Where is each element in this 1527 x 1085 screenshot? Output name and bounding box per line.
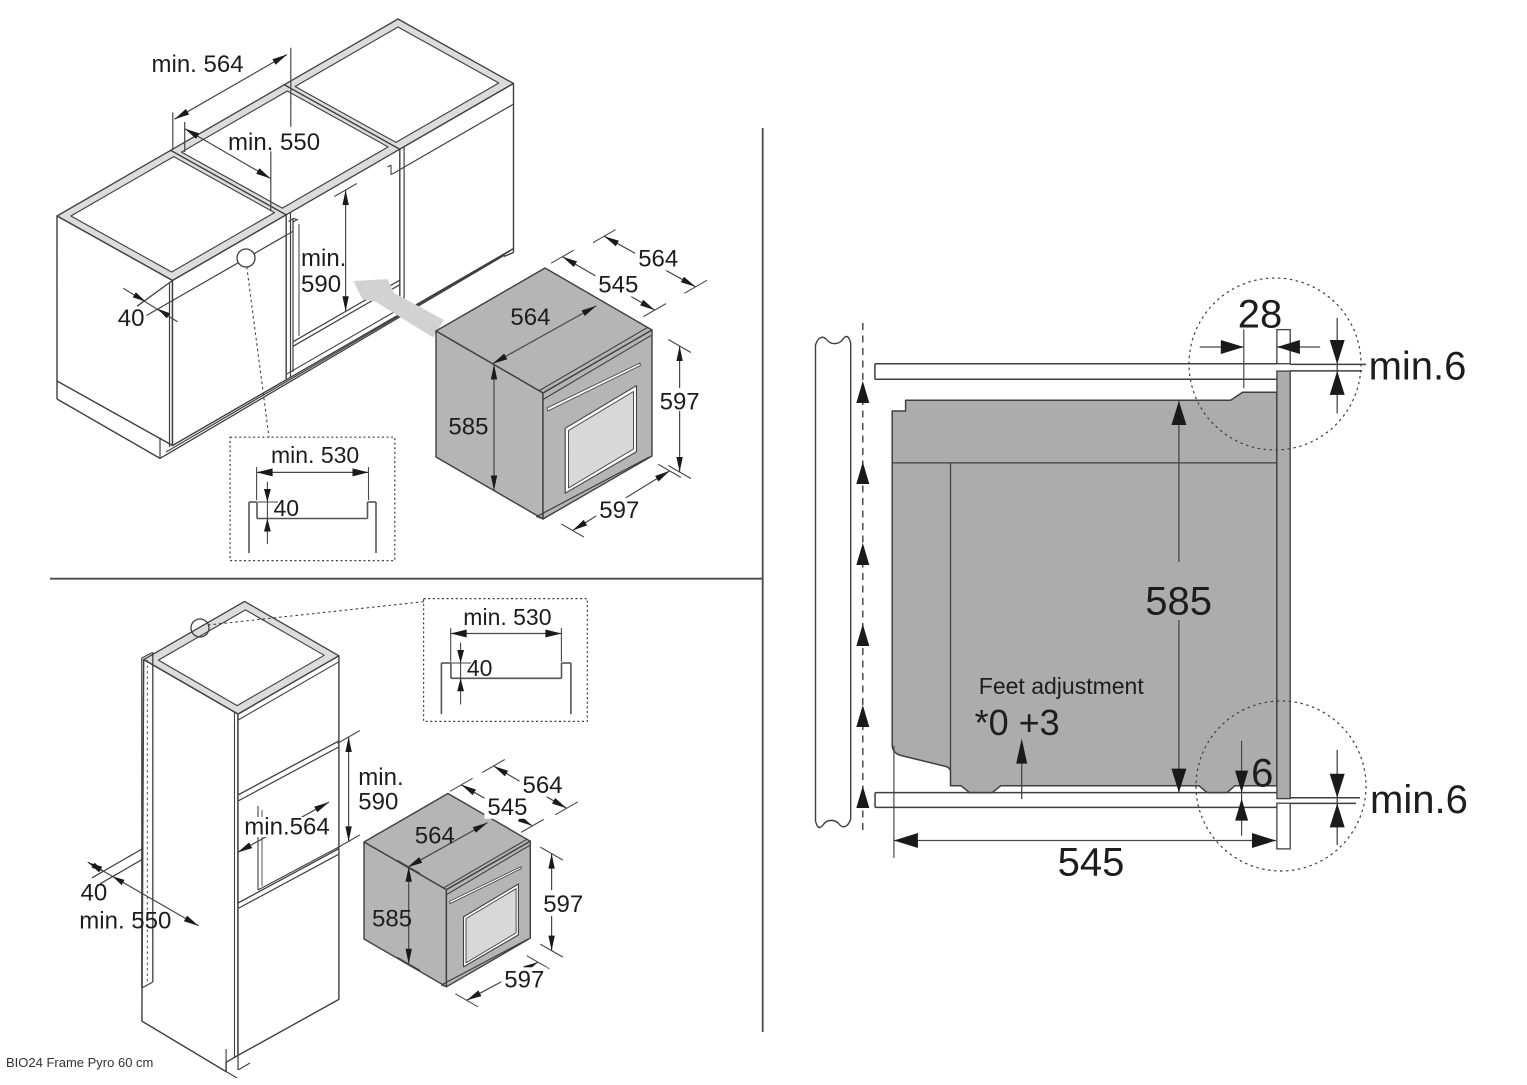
svg-text:564: 564 [415,822,455,849]
svg-text:597: 597 [599,497,639,524]
svg-text:40: 40 [467,655,493,681]
svg-text:40: 40 [81,880,108,907]
svg-text:min.: min. [301,245,346,272]
svg-text:min.6: min.6 [1370,778,1468,822]
svg-text:*0 +3: *0 +3 [975,702,1060,743]
svg-text:min.6: min.6 [1369,345,1467,389]
svg-text:545: 545 [487,794,527,821]
svg-text:585: 585 [1145,579,1212,623]
svg-text:min.564: min.564 [244,814,329,841]
svg-text:597: 597 [504,966,544,993]
svg-text:28: 28 [1238,293,1283,337]
svg-text:590: 590 [358,788,398,815]
svg-text:545: 545 [598,272,638,299]
svg-text:545: 545 [1058,841,1125,885]
svg-text:min. 530: min. 530 [463,604,551,630]
svg-text:585: 585 [372,905,412,932]
svg-text:597: 597 [543,891,583,918]
svg-text:6: 6 [1251,751,1273,795]
svg-text:min. 564: min. 564 [152,51,244,78]
svg-text:min. 550: min. 550 [79,907,171,934]
svg-text:590: 590 [301,271,341,298]
svg-text:564: 564 [523,772,563,799]
svg-text:585: 585 [448,414,488,441]
svg-text:597: 597 [660,388,700,415]
svg-text:min.: min. [358,764,403,791]
svg-text:Feet adjustment: Feet adjustment [979,673,1145,699]
svg-text:564: 564 [638,245,678,272]
svg-text:40: 40 [118,305,145,332]
svg-text:564: 564 [510,304,550,331]
svg-text:min. 550: min. 550 [228,129,320,156]
svg-text:BIO24 Frame Pyro 60 cm: BIO24 Frame Pyro 60 cm [6,1055,153,1070]
svg-text:40: 40 [274,495,300,521]
svg-text:min. 530: min. 530 [271,442,359,468]
